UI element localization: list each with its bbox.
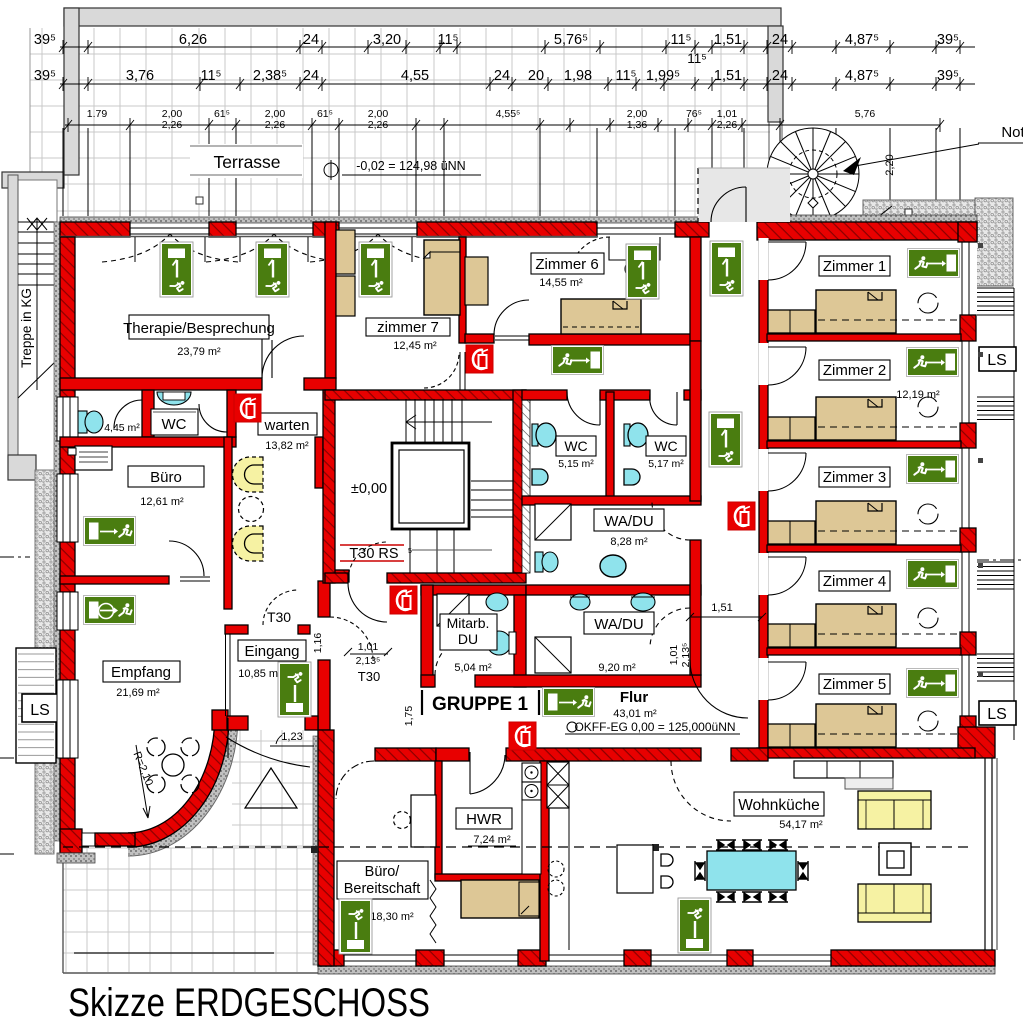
svg-text:9,20 m²: 9,20 m² bbox=[598, 662, 636, 674]
svg-text:61⁵: 61⁵ bbox=[317, 108, 333, 120]
svg-text:5,15 m²: 5,15 m² bbox=[558, 458, 594, 470]
svg-text:18,30 m²: 18,30 m² bbox=[370, 911, 414, 923]
svg-text:24: 24 bbox=[772, 68, 788, 84]
svg-text:WA/DU: WA/DU bbox=[604, 513, 653, 530]
svg-text:4,45 m²: 4,45 m² bbox=[104, 422, 140, 434]
svg-text:Flur: Flur bbox=[620, 689, 648, 706]
svg-text:76⁵: 76⁵ bbox=[686, 108, 702, 120]
svg-text:10,85 m²: 10,85 m² bbox=[238, 668, 282, 680]
svg-text:5,76⁵: 5,76⁵ bbox=[554, 32, 588, 48]
svg-text:1,98: 1,98 bbox=[564, 68, 592, 84]
svg-text:1,23: 1,23 bbox=[281, 731, 302, 743]
svg-text:2,13⁵: 2,13⁵ bbox=[356, 655, 381, 667]
svg-text:8,28 m²: 8,28 m² bbox=[610, 536, 648, 548]
svg-text:24: 24 bbox=[303, 32, 319, 48]
svg-text:4,55: 4,55 bbox=[401, 68, 429, 84]
svg-text:DU: DU bbox=[458, 631, 478, 647]
svg-text:12,45 m²: 12,45 m² bbox=[393, 340, 437, 352]
svg-text:Zimmer 2: Zimmer 2 bbox=[823, 362, 886, 379]
svg-text:14,55 m²: 14,55 m² bbox=[539, 277, 583, 289]
svg-text:6,26: 6,26 bbox=[179, 32, 207, 48]
svg-text:12,19 m²: 12,19 m² bbox=[896, 389, 940, 401]
svg-text:39⁵: 39⁵ bbox=[34, 32, 56, 48]
svg-text:1,36: 1,36 bbox=[627, 119, 648, 131]
svg-text:2,26: 2,26 bbox=[368, 119, 389, 131]
svg-text:WC: WC bbox=[654, 438, 677, 454]
svg-text:24: 24 bbox=[303, 68, 319, 84]
svg-text:1,51: 1,51 bbox=[714, 68, 742, 84]
svg-text:11⁵: 11⁵ bbox=[615, 68, 636, 84]
svg-text:2,13⁵: 2,13⁵ bbox=[680, 643, 692, 668]
svg-text:GRUPPE 1: GRUPPE 1 bbox=[432, 694, 529, 715]
svg-text:1,16: 1,16 bbox=[312, 633, 324, 654]
svg-text:Skizze ERDGESCHOSS: Skizze ERDGESCHOSS bbox=[68, 981, 430, 1023]
svg-text:39⁵: 39⁵ bbox=[937, 68, 959, 84]
svg-text:61⁵: 61⁵ bbox=[214, 108, 230, 120]
svg-text:7,24 m²: 7,24 m² bbox=[473, 834, 511, 846]
svg-text:3,20: 3,20 bbox=[373, 32, 401, 48]
svg-text:T30: T30 bbox=[358, 669, 380, 684]
svg-text:1,51: 1,51 bbox=[711, 602, 732, 614]
svg-text:4,55⁵: 4,55⁵ bbox=[496, 108, 521, 120]
svg-text:1,99⁵: 1,99⁵ bbox=[646, 68, 680, 84]
svg-text:11⁵: 11⁵ bbox=[437, 32, 458, 48]
svg-text:WA/DU: WA/DU bbox=[594, 616, 643, 633]
svg-text:1,01: 1,01 bbox=[358, 641, 379, 653]
svg-text:2,26: 2,26 bbox=[717, 119, 738, 131]
svg-text:11⁵: 11⁵ bbox=[687, 51, 707, 66]
svg-text:24: 24 bbox=[772, 32, 788, 48]
svg-text:1.79: 1.79 bbox=[87, 108, 108, 120]
svg-text:±0,00: ±0,00 bbox=[351, 481, 387, 497]
svg-text:5,76: 5,76 bbox=[855, 108, 876, 120]
svg-text:54,17 m²: 54,17 m² bbox=[779, 819, 823, 831]
svg-text:warten: warten bbox=[263, 417, 309, 434]
svg-text:24: 24 bbox=[494, 68, 510, 84]
svg-text:12,61 m²: 12,61 m² bbox=[140, 496, 184, 508]
svg-text:Büro: Büro bbox=[150, 469, 182, 486]
svg-text:Terrasse: Terrasse bbox=[213, 152, 280, 172]
svg-text:Zimmer 5: Zimmer 5 bbox=[823, 676, 886, 693]
svg-text:20: 20 bbox=[528, 68, 544, 84]
svg-text:Wohnküche: Wohnküche bbox=[738, 797, 820, 814]
svg-text:T30 RS: T30 RS bbox=[349, 546, 398, 562]
svg-text:Bereitschaft: Bereitschaft bbox=[344, 881, 421, 897]
svg-text:5,17 m²: 5,17 m² bbox=[648, 458, 684, 470]
svg-text:39⁵: 39⁵ bbox=[937, 32, 959, 48]
svg-text:Büro/: Büro/ bbox=[365, 864, 401, 880]
svg-text:Not: Not bbox=[1001, 124, 1023, 141]
svg-text:3,76: 3,76 bbox=[126, 68, 154, 84]
svg-text:4,87⁵: 4,87⁵ bbox=[845, 68, 879, 84]
svg-text:2,26: 2,26 bbox=[265, 119, 286, 131]
svg-text:Eingang: Eingang bbox=[244, 643, 299, 660]
svg-text:HWR: HWR bbox=[466, 811, 502, 828]
svg-text:4,87⁵: 4,87⁵ bbox=[845, 32, 879, 48]
svg-text:zimmer 7: zimmer 7 bbox=[377, 319, 439, 336]
svg-text:Therapie/Besprechung: Therapie/Besprechung bbox=[123, 320, 275, 337]
svg-text:Zimmer 6: Zimmer 6 bbox=[535, 256, 598, 273]
svg-text:13,82 m²: 13,82 m² bbox=[265, 440, 309, 452]
svg-text:WC: WC bbox=[162, 416, 187, 433]
svg-text:LS: LS bbox=[987, 352, 1007, 369]
svg-text:2,20: 2,20 bbox=[884, 154, 896, 175]
svg-text:21,69 m²: 21,69 m² bbox=[116, 687, 160, 699]
svg-text:2,38⁵: 2,38⁵ bbox=[253, 68, 287, 84]
svg-text:43,01 m²: 43,01 m² bbox=[613, 708, 657, 720]
svg-text:Empfang: Empfang bbox=[111, 664, 171, 681]
svg-text:Mitarb.: Mitarb. bbox=[447, 615, 490, 631]
svg-text:1,51: 1,51 bbox=[714, 32, 742, 48]
svg-text:11⁵: 11⁵ bbox=[200, 68, 221, 84]
svg-text:2,26: 2,26 bbox=[162, 119, 183, 131]
svg-text:OKFF-EG 0,00 = 125,000üNN: OKFF-EG 0,00 = 125,000üNN bbox=[574, 720, 735, 734]
svg-text:5,04 m²: 5,04 m² bbox=[454, 662, 492, 674]
svg-text:T30: T30 bbox=[267, 609, 291, 625]
svg-text:-0,02 = 124,98 üNN: -0,02 = 124,98 üNN bbox=[356, 159, 465, 173]
svg-text:Zimmer 3: Zimmer 3 bbox=[823, 469, 886, 486]
svg-text:WC: WC bbox=[564, 438, 587, 454]
svg-text:11⁵: 11⁵ bbox=[670, 32, 691, 48]
svg-text:5: 5 bbox=[408, 548, 412, 555]
svg-text:Treppe in KG: Treppe in KG bbox=[19, 288, 34, 368]
svg-text:1,75: 1,75 bbox=[403, 706, 415, 727]
svg-text:Zimmer 1: Zimmer 1 bbox=[823, 258, 886, 275]
svg-text:LS: LS bbox=[987, 706, 1007, 723]
svg-text:1,01: 1,01 bbox=[668, 645, 680, 666]
svg-text:LS: LS bbox=[30, 702, 50, 719]
svg-text:39⁵: 39⁵ bbox=[34, 68, 56, 84]
svg-text:23,79 m²: 23,79 m² bbox=[177, 346, 221, 358]
svg-text:Zimmer 4: Zimmer 4 bbox=[823, 573, 886, 590]
